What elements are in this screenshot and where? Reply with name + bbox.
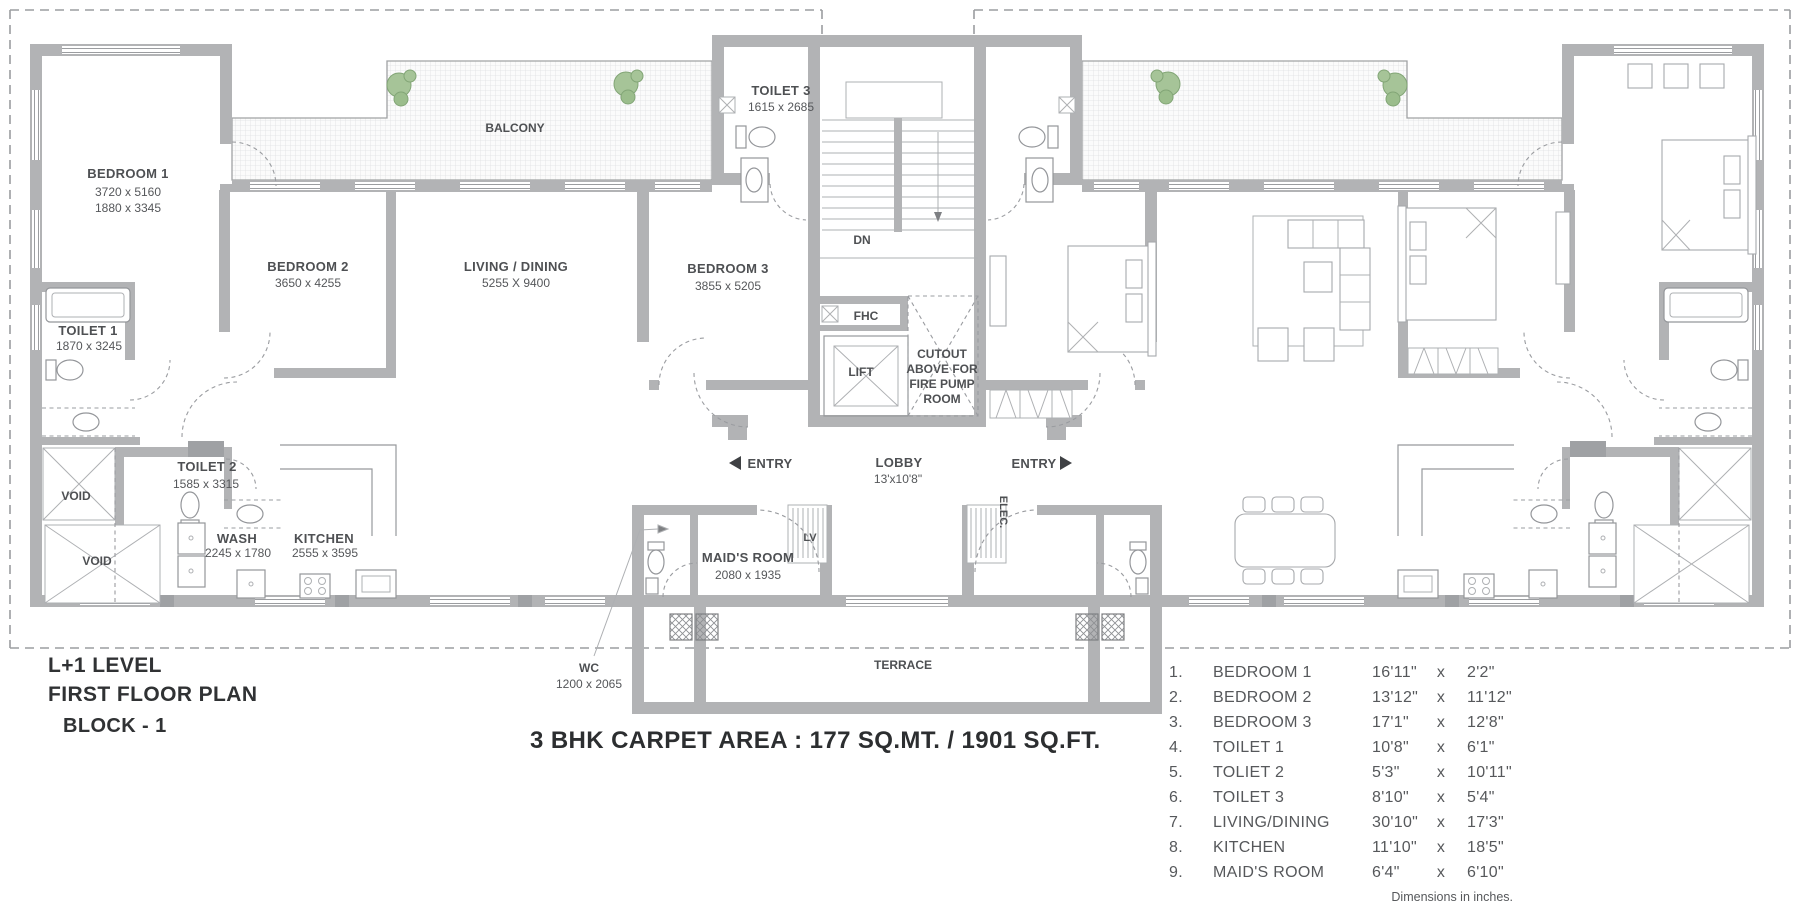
legend-height: 17'3"	[1467, 814, 1504, 831]
legend-height: 10'11"	[1467, 764, 1512, 781]
label-cutout-2: ABOVE FOR	[906, 362, 978, 376]
legend-num: 6.	[1169, 789, 1183, 806]
label-toilet2-dim: 1585 x 3315	[173, 477, 239, 491]
label-wash-dim: 2245 x 1780	[205, 546, 271, 560]
label-entry-right: ENTRY	[1011, 456, 1056, 471]
legend-num: 9.	[1169, 864, 1183, 881]
legend-x: x	[1437, 789, 1445, 806]
legend-x: x	[1437, 814, 1445, 831]
legend-name: LIVING/DINING	[1213, 814, 1330, 831]
label-balcony: BALCONY	[485, 121, 544, 135]
legend-width: 30'10"	[1372, 814, 1418, 831]
legend-name: BEDROOM 3	[1213, 714, 1312, 731]
legend-row: 9. MAID'S ROOM 6'4" x 6'10"	[1169, 864, 1504, 881]
legend-height: 2'2"	[1467, 664, 1495, 681]
legend-name: BEDROOM 2	[1213, 689, 1312, 706]
stair-core	[820, 82, 978, 606]
legend-height: 12'8"	[1467, 714, 1504, 731]
legend-name: TOILET 1	[1213, 739, 1284, 756]
label-elec: ELEC.	[997, 496, 1009, 528]
label-void1: VOID	[61, 489, 91, 503]
legend-x: x	[1437, 764, 1445, 781]
legend-num: 1.	[1169, 664, 1183, 681]
label-maids-room-dim: 2080 x 1935	[715, 568, 781, 582]
legend-x: x	[1437, 689, 1445, 706]
legend-name: BEDROOM 1	[1213, 664, 1312, 681]
legend-name: MAID'S ROOM	[1213, 864, 1324, 881]
label-toilet2: TOILET 2	[177, 459, 236, 474]
legend-row: 3. BEDROOM 3 17'1" x 12'8"	[1169, 714, 1504, 731]
label-bedroom2-dim: 3650 x 4255	[275, 276, 341, 290]
label-void2: VOID	[82, 554, 112, 568]
legend-width: 5'3"	[1372, 764, 1400, 781]
legend-width: 13'12"	[1372, 689, 1418, 706]
label-wc: WC	[579, 661, 599, 675]
entry-left-arrow-icon	[729, 456, 741, 470]
title-plan: FIRST FLOOR PLAN	[48, 683, 257, 706]
legend-num: 7.	[1169, 814, 1183, 831]
legend-width: 10'8"	[1372, 739, 1409, 756]
legend-row: 2. BEDROOM 2 13'12" x 11'12"	[1169, 689, 1512, 706]
label-living-dining: LIVING / DINING	[464, 259, 568, 274]
floor-plan-canvas: BEDROOM 1 3720 x 5160 1880 x 3345 BALCON…	[0, 0, 1800, 910]
room-legend: 1. BEDROOM 1 16'11" x 2'2" 2. BEDROOM 2 …	[1169, 664, 1513, 904]
floor-plan-page: BEDROOM 1 3720 x 5160 1880 x 3345 BALCON…	[0, 0, 1800, 910]
label-bedroom3: BEDROOM 3	[687, 261, 768, 276]
legend-num: 3.	[1169, 714, 1183, 731]
label-cutout-1: CUTOUT	[917, 347, 967, 361]
legend-width: 17'1"	[1372, 714, 1409, 731]
legend-row: 7. LIVING/DINING 30'10" x 17'3"	[1169, 814, 1504, 831]
label-lift: LIFT	[848, 365, 874, 379]
label-dn: DN	[853, 233, 870, 247]
legend-height: 5'4"	[1467, 789, 1495, 806]
label-kitchen: KITCHEN	[294, 531, 354, 546]
legend-width: 11'10"	[1372, 839, 1417, 856]
legend-num: 4.	[1169, 739, 1183, 756]
label-cutout-3: FIRE PUMP	[909, 377, 974, 391]
label-wc-dim: 1200 x 2065	[556, 677, 622, 691]
legend-num: 5.	[1169, 764, 1183, 781]
legend-num: 2.	[1169, 689, 1183, 706]
label-toilet3-dim: 1615 x 2685	[748, 100, 814, 114]
title-level: L+1 LEVEL	[48, 654, 162, 677]
label-bedroom3-dim: 3855 x 5205	[695, 279, 761, 293]
legend-height: 18'5"	[1467, 839, 1504, 856]
entry-right-arrow-icon	[1060, 456, 1072, 470]
legend-row: 1. BEDROOM 1 16'11" x 2'2"	[1169, 664, 1495, 681]
legend-row: 5. TOLIET 2 5'3" x 10'11"	[1169, 764, 1512, 781]
legend-x: x	[1437, 664, 1445, 681]
label-toilet3: TOILET 3	[751, 83, 810, 98]
label-living-dining-dim: 5255 X 9400	[482, 276, 550, 290]
legend-note: Dimensions in inches.	[1391, 890, 1513, 904]
label-lobby: LOBBY	[876, 455, 923, 470]
label-fhc: FHC	[854, 309, 879, 323]
legend-row: 6. TOILET 3 8'10" x 5'4"	[1169, 789, 1495, 806]
label-wash: WASH	[217, 531, 257, 546]
legend-width: 6'4"	[1372, 864, 1400, 881]
label-maids-room: MAID'S ROOM	[702, 550, 794, 565]
label-bedroom1-dim1: 3720 x 5160	[95, 185, 161, 199]
legend-x: x	[1437, 839, 1445, 856]
legend-num: 8.	[1169, 839, 1183, 856]
legend-name: TOLIET 2	[1213, 764, 1284, 781]
legend-x: x	[1437, 714, 1445, 731]
label-lv: LV	[803, 532, 817, 544]
label-entry-left: ENTRY	[747, 456, 792, 471]
legend-row: 4. TOILET 1 10'8" x 6'1"	[1169, 739, 1495, 756]
label-lobby-dim: 13'x10'8"	[874, 472, 922, 486]
label-cutout-4: ROOM	[923, 392, 960, 406]
legend-height: 6'1"	[1467, 739, 1495, 756]
label-terrace: TERRACE	[874, 658, 932, 672]
legend-height: 6'10"	[1467, 864, 1504, 881]
legend-name: TOILET 3	[1213, 789, 1284, 806]
legend-name: KITCHEN	[1213, 839, 1285, 856]
apartment-unit-right	[896, 35, 1764, 714]
label-bedroom1-dim2: 1880 x 3345	[95, 201, 161, 215]
legend-width: 8'10"	[1372, 789, 1409, 806]
label-kitchen-dim: 2555 x 3595	[292, 546, 358, 560]
legend-x: x	[1437, 739, 1445, 756]
apartment-unit-left	[30, 35, 898, 714]
carpet-area-text: 3 BHK CARPET AREA : 177 SQ.MT. / 1901 SQ…	[530, 727, 1101, 754]
label-bedroom1: BEDROOM 1	[87, 166, 168, 181]
legend-height: 11'12"	[1467, 689, 1512, 706]
legend-x: x	[1437, 864, 1445, 881]
legend-width: 16'11"	[1372, 664, 1417, 681]
fhc-box-icon	[822, 306, 838, 322]
title-block-number: BLOCK - 1	[63, 715, 167, 737]
label-bedroom2: BEDROOM 2	[267, 259, 348, 274]
label-toilet1: TOILET 1	[58, 323, 117, 338]
legend-row: 8. KITCHEN 11'10" x 18'5"	[1169, 839, 1504, 856]
label-toilet1-dim: 1870 x 3245	[56, 339, 122, 353]
